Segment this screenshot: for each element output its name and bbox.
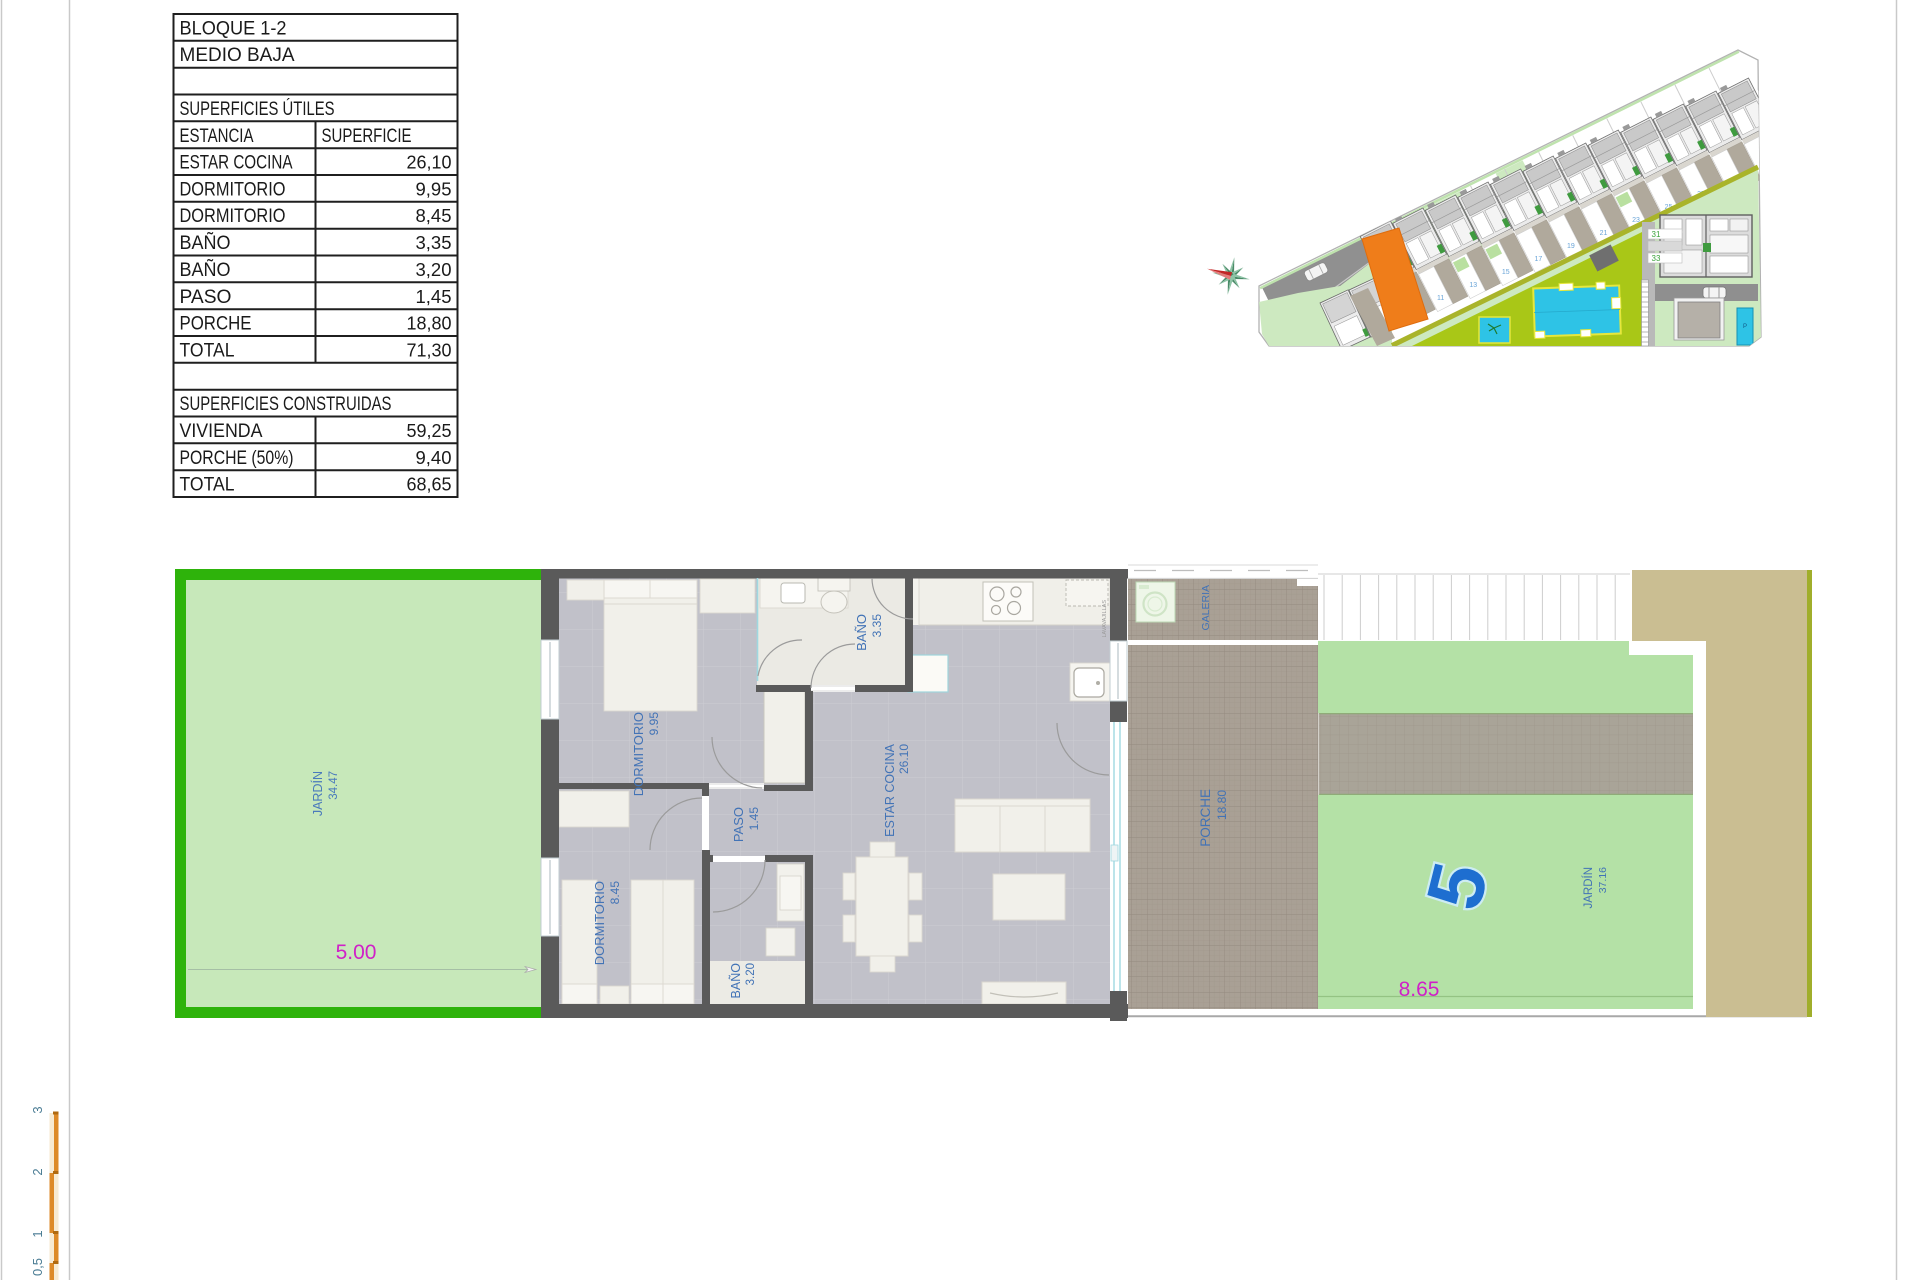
svg-text:19: 19 [1567, 243, 1575, 250]
svg-text:ESTAR COCINA: ESTAR COCINA [180, 152, 293, 174]
svg-text:DORMITORIO: DORMITORIO [180, 205, 286, 227]
svg-text:26,10: 26,10 [407, 152, 452, 173]
svg-text:BAÑO: BAÑO [180, 257, 231, 281]
svg-text:TOTAL: TOTAL [180, 474, 235, 496]
svg-text:5.00: 5.00 [336, 941, 377, 964]
svg-text:3,20: 3,20 [416, 259, 452, 280]
svg-text:BAÑO: BAÑO [180, 230, 231, 254]
svg-text:9,40: 9,40 [416, 447, 452, 468]
svg-text:9,95: 9,95 [416, 178, 452, 199]
svg-text:BAÑO: BAÑO [854, 614, 869, 651]
svg-text:SUPERFICIES ÚTILES: SUPERFICIES ÚTILES [180, 97, 335, 120]
svg-text:P: P [1743, 324, 1747, 330]
svg-text:3,35: 3,35 [416, 232, 452, 253]
svg-text:31: 31 [1652, 230, 1661, 239]
svg-text:LAVAVAJILLAS: LAVAVAJILLAS [1102, 600, 1108, 638]
svg-text:17: 17 [1534, 256, 1542, 263]
svg-text:DORMITORIO: DORMITORIO [592, 881, 607, 965]
svg-text:PORCHE: PORCHE [1198, 789, 1213, 847]
svg-text:34.47: 34.47 [328, 771, 340, 800]
svg-text:DORMITORIO: DORMITORIO [180, 178, 286, 200]
svg-text:11: 11 [1437, 295, 1444, 302]
svg-text:59,25: 59,25 [407, 420, 452, 441]
svg-text:8.45: 8.45 [608, 881, 622, 905]
svg-text:3: 3 [30, 1106, 45, 1113]
svg-text:0,5: 0,5 [30, 1258, 45, 1276]
svg-text:JARDÍN: JARDÍN [310, 771, 325, 816]
svg-text:1,45: 1,45 [416, 286, 452, 307]
svg-text:68,65: 68,65 [407, 474, 452, 495]
svg-text:26.10: 26.10 [897, 744, 911, 774]
svg-text:PORCHE: PORCHE [180, 313, 252, 335]
svg-text:3.35: 3.35 [870, 614, 884, 638]
svg-text:9.95: 9.95 [647, 712, 661, 736]
svg-text:33: 33 [1652, 254, 1661, 263]
svg-text:18,80: 18,80 [407, 313, 452, 334]
svg-text:3.20: 3.20 [745, 963, 757, 985]
svg-text:JARDÍN: JARDÍN [1582, 867, 1595, 909]
svg-text:GALERIA: GALERIA [1200, 585, 1212, 631]
svg-text:18.80: 18.80 [1215, 790, 1229, 820]
svg-text:VIVIENDA: VIVIENDA [180, 420, 263, 442]
svg-text:ESTAR COCINA: ESTAR COCINA [883, 743, 897, 836]
svg-text:ESTANCIA: ESTANCIA [180, 125, 254, 147]
svg-text:MEDIO BAJA: MEDIO BAJA [180, 44, 295, 66]
svg-text:BAÑO: BAÑO [729, 963, 743, 999]
svg-text:PASO: PASO [731, 807, 746, 842]
svg-text:15: 15 [1502, 269, 1510, 276]
svg-text:8.65: 8.65 [1399, 978, 1440, 1001]
svg-text:SUPERFICIES CONSTRUIDAS: SUPERFICIES CONSTRUIDAS [180, 393, 392, 415]
svg-text:21: 21 [1600, 230, 1608, 237]
svg-text:71,30: 71,30 [407, 339, 452, 360]
svg-text:1: 1 [30, 1230, 45, 1237]
svg-text:2: 2 [30, 1168, 45, 1175]
svg-text:PASO: PASO [180, 286, 232, 308]
svg-text:DORMITORIO: DORMITORIO [631, 712, 646, 796]
svg-text:PORCHE (50%): PORCHE (50%) [180, 447, 294, 469]
svg-text:8,45: 8,45 [416, 205, 452, 226]
svg-text:TOTAL: TOTAL [180, 339, 235, 361]
svg-text:13: 13 [1469, 282, 1477, 289]
svg-text:SUPERFICIE: SUPERFICIE [322, 125, 412, 147]
svg-text:1.45: 1.45 [747, 807, 761, 831]
svg-text:BLOQUE 1-2: BLOQUE 1-2 [180, 17, 287, 39]
svg-text:37.16: 37.16 [1597, 867, 1609, 893]
